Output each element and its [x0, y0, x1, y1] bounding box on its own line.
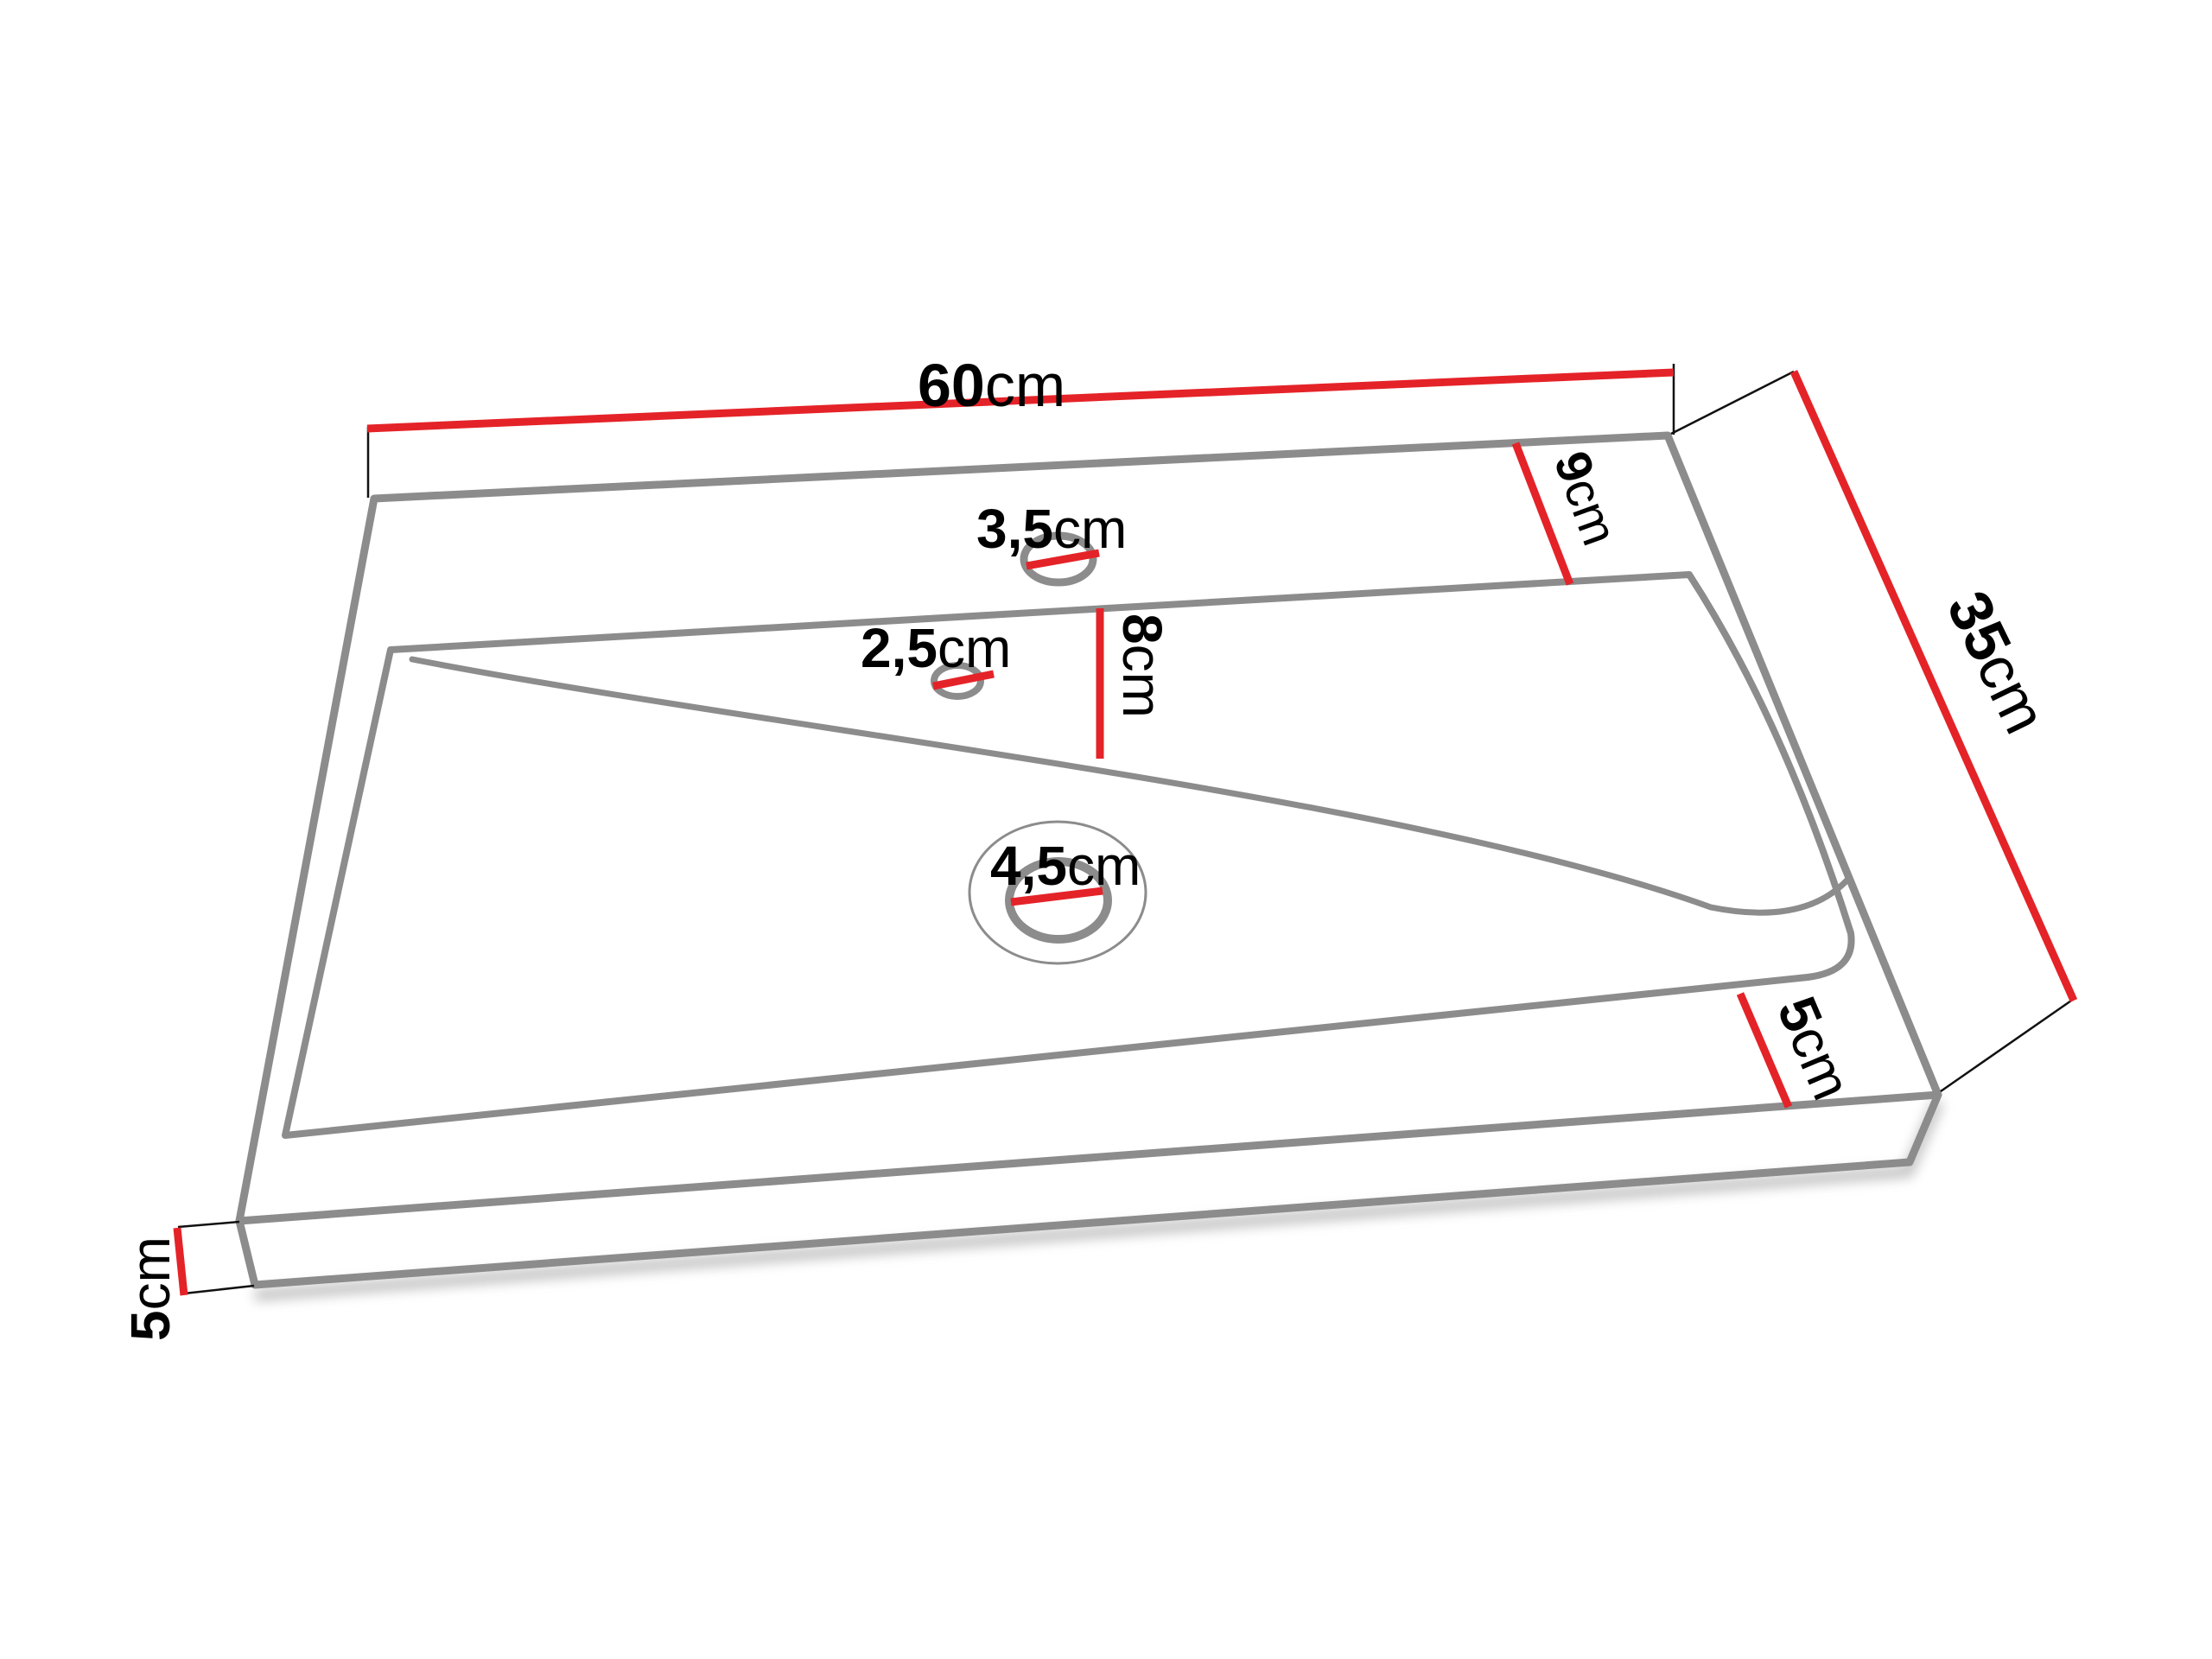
- label-faucet-hole: 3,5cm: [976, 498, 1127, 560]
- label-drain-hole-unit: cm: [1067, 835, 1141, 897]
- diagram-canvas: 60cm 35cm 9cm 8cm 3,5cm 2,5cm 4,5cm 5cm …: [0, 0, 2212, 1659]
- dim-35cm-ext-top: [1671, 372, 1794, 434]
- label-top-width-unit: cm: [985, 352, 1065, 419]
- label-overflow-hole: 2,5cm: [861, 617, 1011, 679]
- label-side-depth: 35cm: [1935, 581, 2060, 743]
- label-overflow-hole-unit: cm: [938, 617, 1011, 679]
- label-slab-thickness: 5cm: [119, 1236, 181, 1341]
- label-slab-thickness-value: 5: [119, 1310, 181, 1341]
- label-faucet-hole-value: 3,5: [976, 498, 1053, 560]
- label-slab-thickness-unit: cm: [119, 1236, 181, 1310]
- label-back-rim-depth: 9cm: [1543, 444, 1629, 552]
- washbasin-dimension-diagram: 60cm 35cm 9cm 8cm 3,5cm 2,5cm 4,5cm 5cm …: [0, 0, 2212, 1659]
- dim-35cm-ext-bottom: [1941, 999, 2074, 1091]
- label-basin-depth: 8cm: [1111, 613, 1173, 718]
- label-drain-hole: 4,5cm: [990, 835, 1141, 897]
- label-drain-hole-value: 4,5: [990, 835, 1067, 897]
- dim-5cm-left-ext-bottom: [184, 1286, 254, 1294]
- label-basin-depth-value: 8: [1111, 613, 1173, 645]
- label-top-width: 60cm: [918, 352, 1065, 419]
- label-faucet-hole-unit: cm: [1053, 498, 1127, 560]
- label-basin-depth-unit: cm: [1111, 645, 1173, 718]
- label-top-width-value: 60: [918, 352, 985, 419]
- dim-5cm-left-ext-top: [178, 1222, 239, 1227]
- label-overflow-hole-value: 2,5: [861, 617, 938, 679]
